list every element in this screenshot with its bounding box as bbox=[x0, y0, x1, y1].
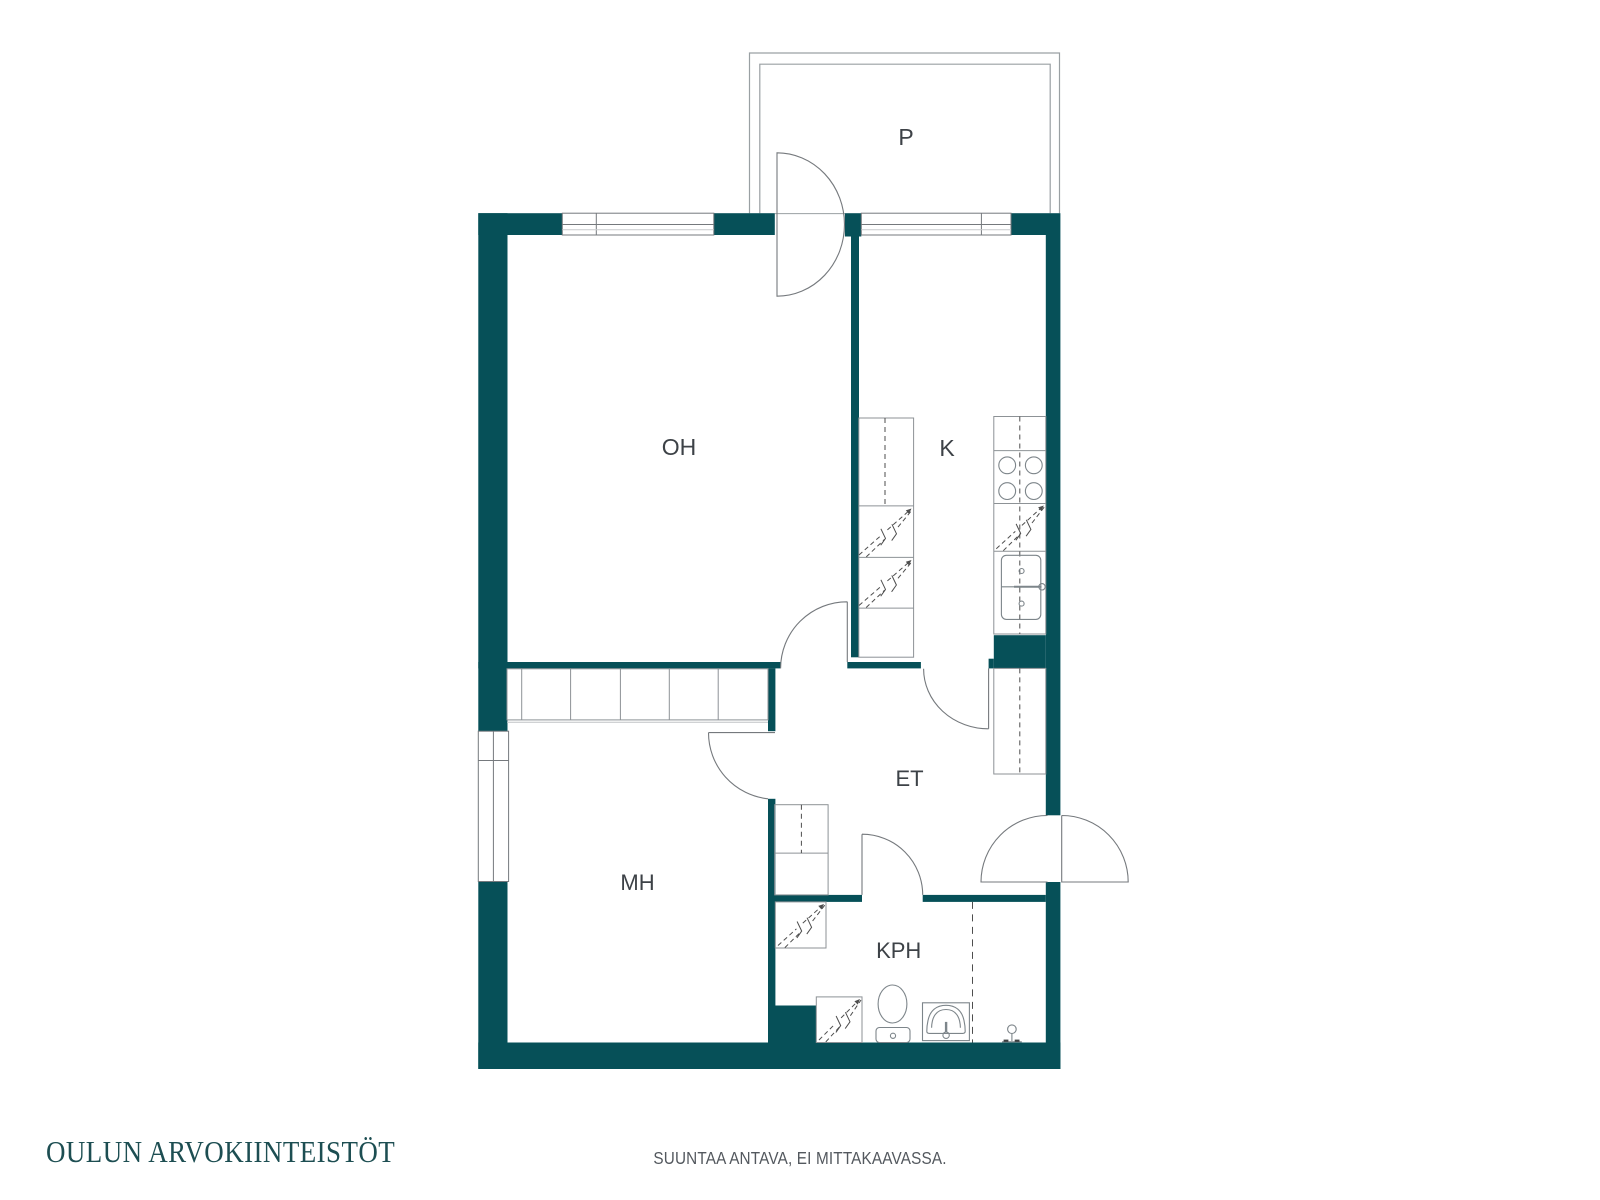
svg-text:K: K bbox=[939, 435, 955, 461]
svg-text:P: P bbox=[898, 124, 913, 150]
svg-text:KPH: KPH bbox=[876, 938, 921, 963]
svg-text:ET: ET bbox=[895, 766, 923, 791]
svg-text:OULUN ARVOKIINTEISTÖT: OULUN ARVOKIINTEISTÖT bbox=[46, 1135, 395, 1169]
svg-text:OH: OH bbox=[662, 434, 697, 460]
svg-text:SUUNTAA ANTAVA, EI MITTAKAAVAS: SUUNTAA ANTAVA, EI MITTAKAAVASSA. bbox=[653, 1148, 946, 1168]
svg-text:MH: MH bbox=[620, 870, 654, 895]
